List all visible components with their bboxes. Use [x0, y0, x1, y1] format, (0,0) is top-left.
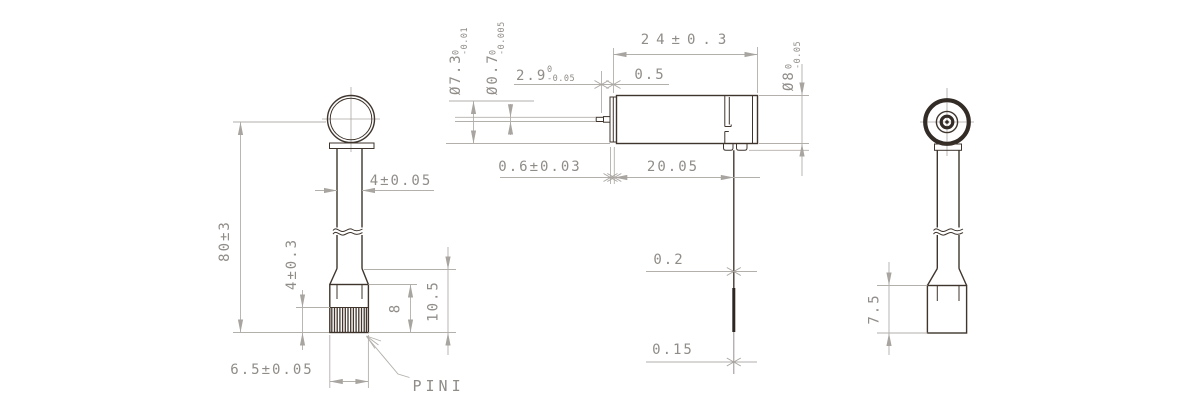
dim-label-block-height: 8 — [388, 303, 404, 313]
dim-label-shaft-length-tol-lower: -0.05 — [547, 74, 575, 84]
shaft-step — [604, 117, 611, 123]
motor-can — [617, 96, 758, 144]
dim-cap-thickness: 0.6±0.03 — [498, 147, 621, 184]
right-view: 7.5 — [867, 88, 975, 355]
technical-drawing: 80±3 4±0.05 4±0.3 8 — [0, 0, 1200, 400]
dim-stem-width: 4±0.05 — [315, 173, 434, 193]
dim-label-can-dia-tol-lower: -0.01 — [460, 27, 470, 55]
dim-label-overall-height: 80±3 — [217, 220, 233, 262]
dim-label-body-length: 24±0.3 — [641, 32, 734, 48]
dim-lead-lower: 0.15 — [646, 342, 757, 366]
dim-label-face-to-lead: 20.05 — [647, 159, 699, 175]
dim-block-width: 6.5±0.05 — [230, 335, 368, 388]
dim-lead-upper: 0.2 — [646, 252, 757, 276]
pin-hatch — [332, 308, 367, 332]
dim-shaft-length: 2.9 0 -0.05 0.5 — [514, 65, 669, 113]
shaft-tip — [596, 117, 603, 121]
center-view: Ø7.3 0 -0.01 Ø0.7 0 -0.005 2.9 0 -0.05 — [446, 21, 809, 374]
dim-can-dia: Ø7.3 0 -0.01 — [446, 27, 610, 144]
terminal-tab-left — [724, 144, 734, 151]
motor-body-outline — [596, 96, 757, 151]
dim-label-right-block-height: 7.5 — [867, 293, 883, 324]
dim-label-pin-section: 4±0.3 — [284, 238, 300, 290]
dim-right-block-height: 7.5 — [867, 262, 928, 355]
dim-overall-height: 80±3 — [217, 122, 329, 333]
left-view: 80±3 4±0.05 4±0.3 8 — [217, 87, 465, 395]
dim-face-to-lead: 20.05 — [614, 159, 760, 180]
dim-pin-section-height: 4±0.3 — [284, 238, 330, 350]
dim-label-lead-upper: 0.2 — [653, 252, 684, 268]
dim-body-length: 24±0.3 — [614, 32, 758, 93]
dim-label-shaft-dia: Ø0.7 — [485, 53, 501, 95]
dim-label-shaft-length: 2.9 — [516, 68, 547, 84]
dim-label-housing-dia-tol-lower: -0.05 — [793, 41, 803, 69]
dim-label-housing-dia: Ø8 — [781, 70, 797, 91]
shaft-center-dot — [945, 120, 949, 124]
dim-label-shaft-dia-tol-lower: -0.005 — [497, 21, 507, 55]
cad-drawing-canvas: 80±3 4±0.05 4±0.3 8 — [0, 0, 1200, 400]
dim-label-cap-thickness: 0.6±0.03 — [498, 159, 581, 175]
dim-label-shaft-step: 0.5 — [634, 67, 665, 83]
dim-label-lead-lower: 0.15 — [652, 342, 694, 358]
dim-block-height: 8 — [368, 285, 417, 333]
pin-label: PINI — [413, 377, 465, 395]
dim-label-stem-width: 4±0.05 — [370, 173, 433, 189]
dim-lower-height: 10.5 — [364, 247, 456, 355]
terminal-tab-right — [737, 144, 748, 151]
dim-label-block-width: 6.5±0.05 — [230, 362, 313, 378]
dim-label-can-dia: Ø7.3 — [448, 53, 464, 95]
dim-label-lower-height: 10.5 — [426, 280, 442, 322]
